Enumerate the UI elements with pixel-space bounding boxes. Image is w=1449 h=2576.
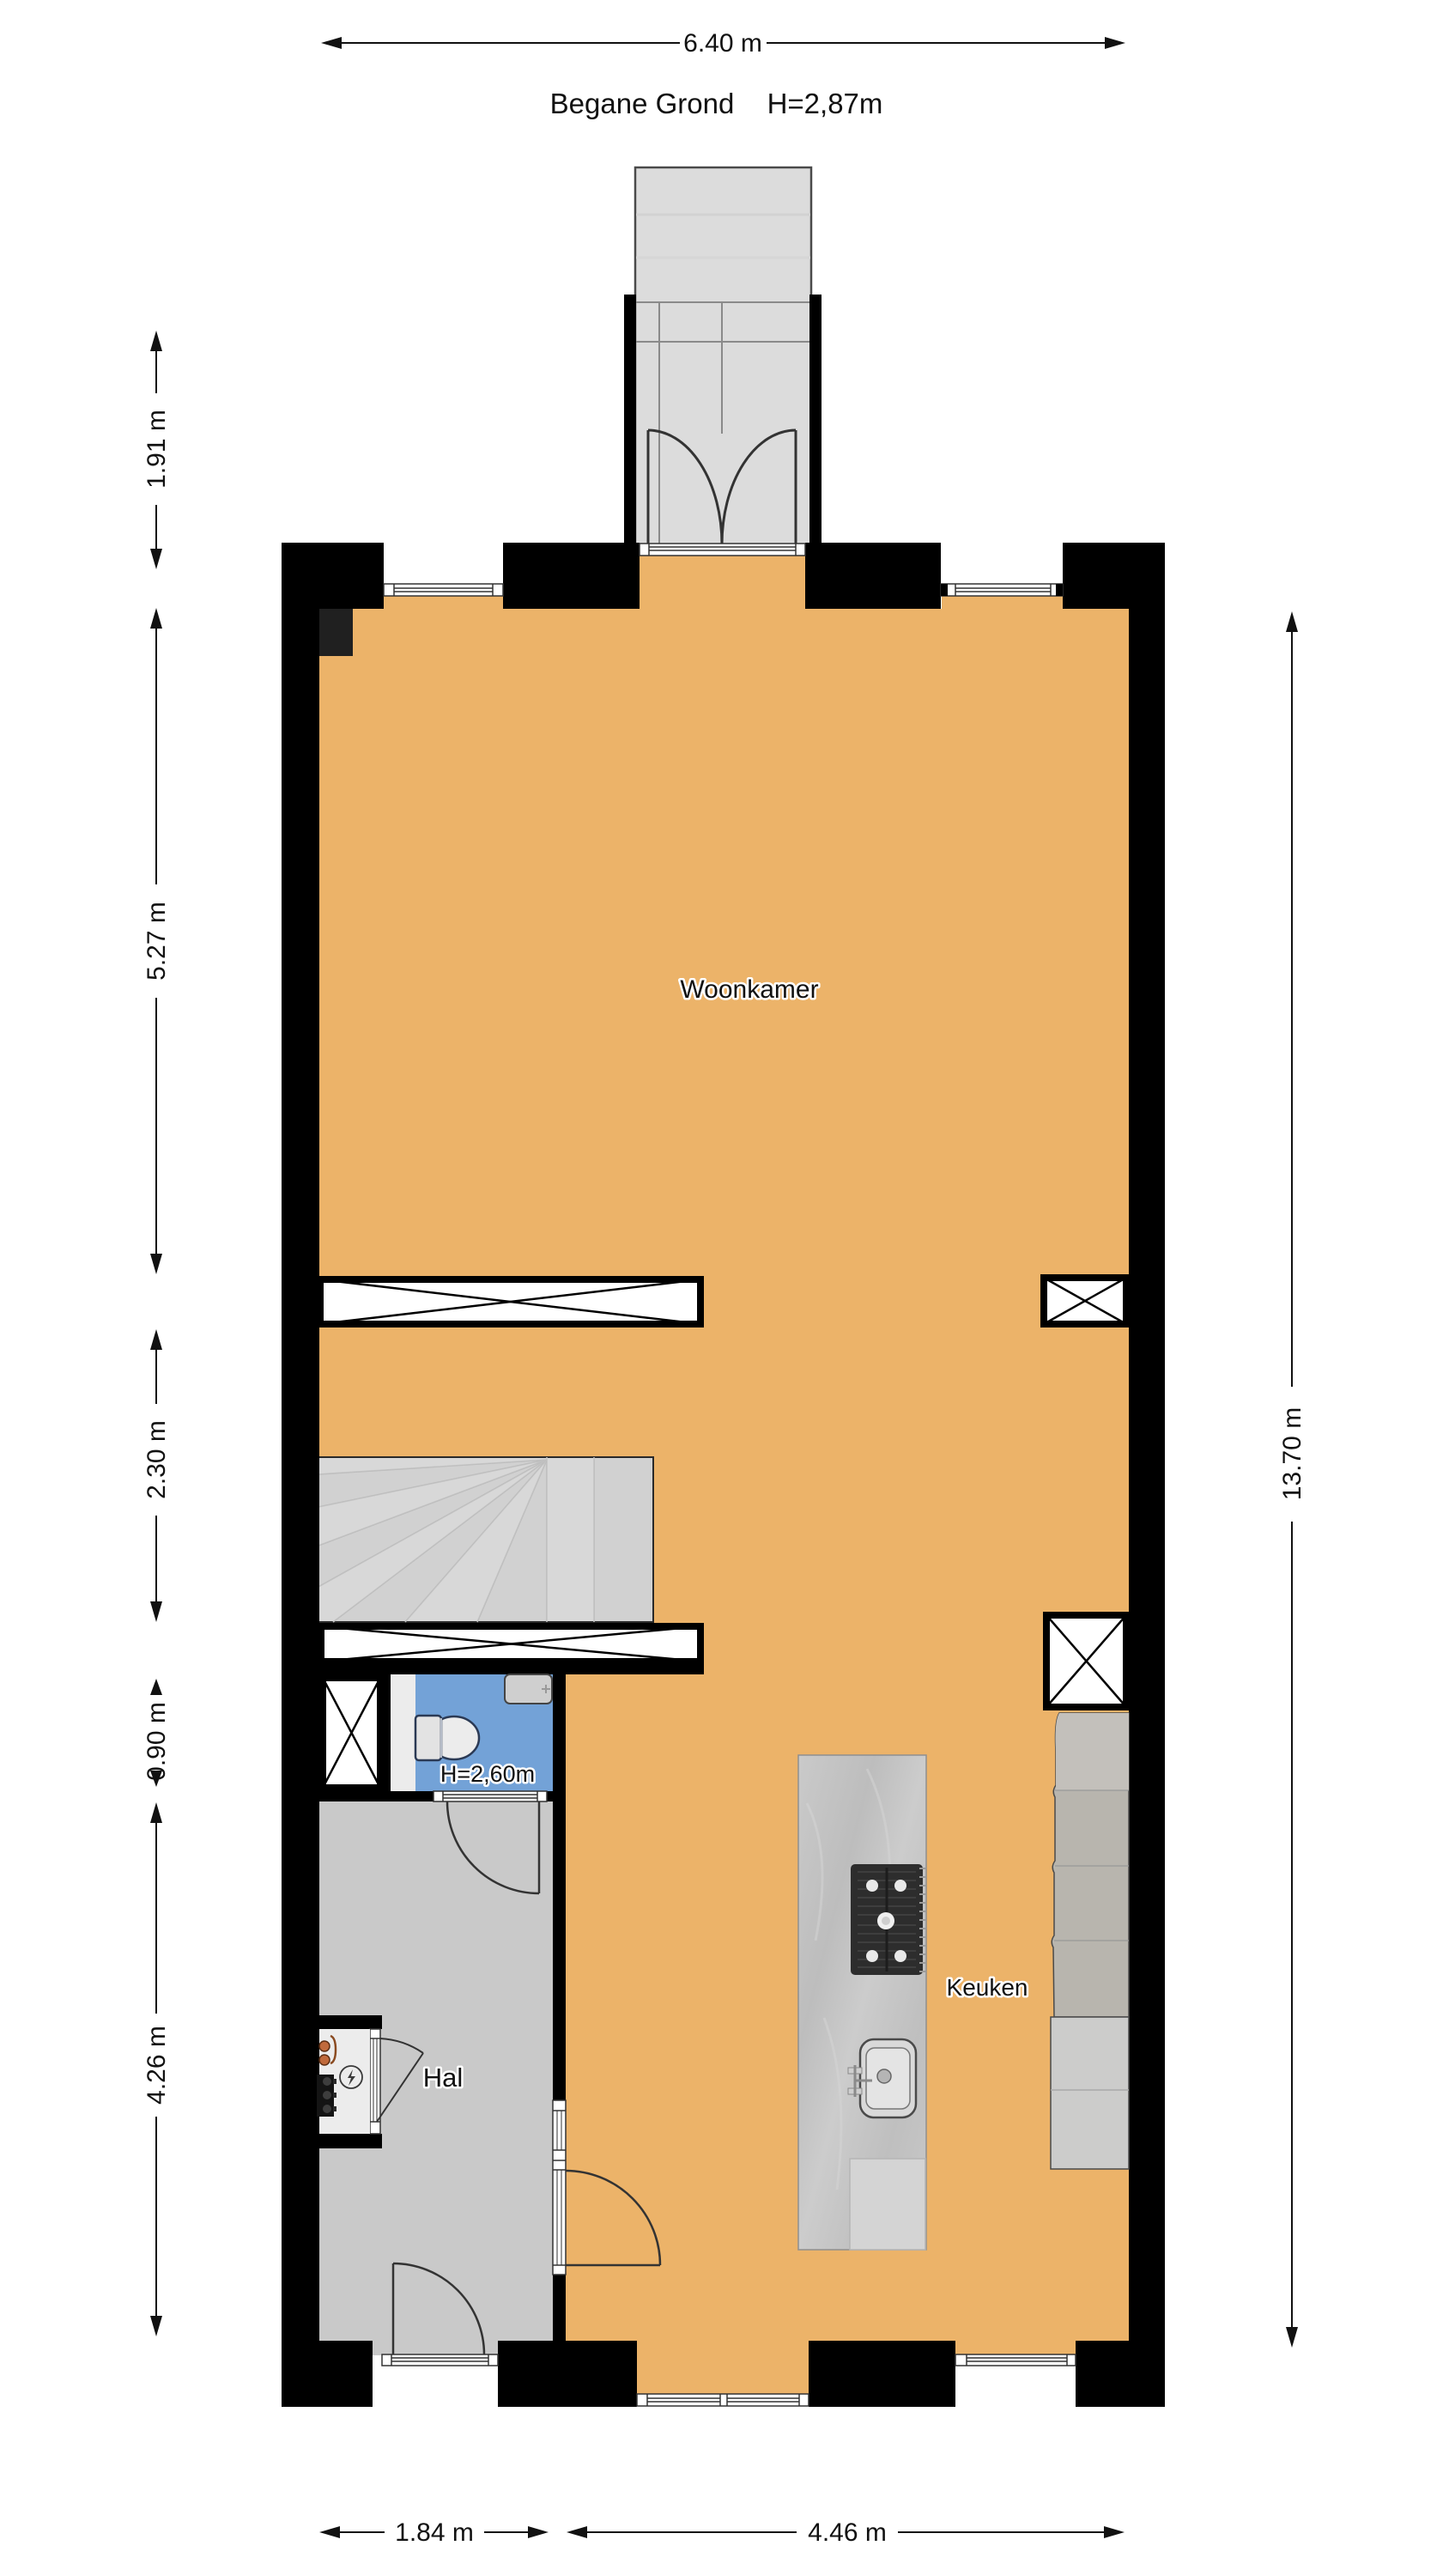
svg-text:1.84 m: 1.84 m: [395, 2518, 474, 2547]
svg-text:13.70 m: 13.70 m: [1278, 1407, 1307, 1500]
svg-text:Woonkamer: Woonkamer: [680, 975, 818, 1004]
svg-text:6.40 m: 6.40 m: [683, 29, 762, 58]
svg-text:H=2,60m: H=2,60m: [440, 1761, 535, 1787]
svg-text:0.90 m: 0.90 m: [142, 1702, 171, 1781]
svg-text:Begane Grond: Begane Grond: [550, 88, 735, 119]
svg-text:5.27 m: 5.27 m: [142, 902, 171, 981]
svg-text:2.30 m: 2.30 m: [142, 1420, 171, 1499]
svg-text:4.26 m: 4.26 m: [142, 2026, 171, 2105]
svg-text:4.46 m: 4.46 m: [808, 2518, 887, 2547]
svg-text:Keuken: Keuken: [947, 1974, 1028, 2001]
svg-text:1.91 m: 1.91 m: [142, 410, 171, 489]
svg-text:Hal: Hal: [423, 2063, 464, 2093]
svg-text:H=2,87m: H=2,87m: [767, 88, 883, 119]
